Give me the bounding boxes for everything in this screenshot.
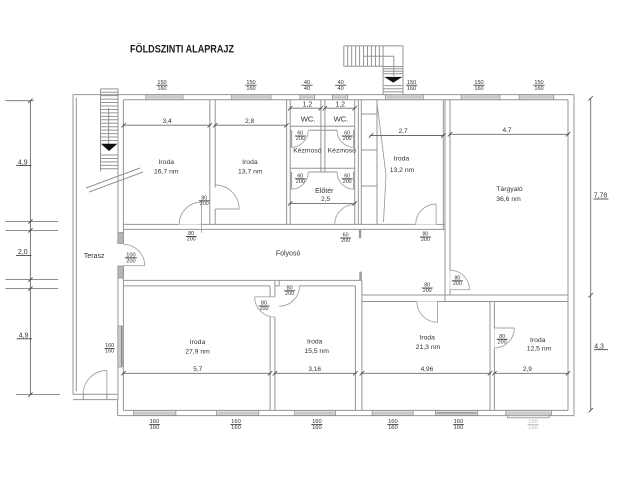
svg-text:160: 160: [528, 425, 538, 431]
svg-text:200: 200: [423, 288, 432, 294]
svg-text:200: 200: [341, 238, 350, 244]
svg-text:Terasz: Terasz: [84, 253, 105, 260]
svg-text:Kézmosó: Kézmosó: [328, 147, 357, 154]
svg-text:160: 160: [388, 425, 398, 431]
svg-text:200: 200: [343, 136, 352, 142]
svg-text:WC.: WC.: [301, 114, 316, 123]
svg-text:160: 160: [474, 86, 483, 92]
svg-text:3,16: 3,16: [308, 366, 321, 373]
svg-text:Előtér: Előtér: [315, 188, 334, 195]
svg-text:7,78: 7,78: [594, 193, 608, 200]
svg-text:2,7: 2,7: [399, 128, 408, 135]
svg-text:1,2: 1,2: [335, 102, 345, 109]
svg-text:160: 160: [105, 349, 114, 355]
svg-text:2,5: 2,5: [321, 196, 330, 203]
svg-text:Iroda: Iroda: [307, 338, 323, 345]
svg-text:FÖLDSZINTI ALAPRAJZ: FÖLDSZINTI ALAPRAJZ: [130, 42, 234, 55]
svg-text:160: 160: [150, 425, 160, 431]
svg-text:160: 160: [312, 425, 322, 431]
svg-text:Tárgyaló: Tárgyaló: [496, 186, 523, 193]
svg-text:27,9 nm: 27,9 nm: [185, 348, 210, 355]
svg-text:15,5 nm: 15,5 nm: [304, 348, 329, 355]
svg-text:13,2 nm: 13,2 nm: [390, 167, 415, 174]
svg-text:16,7 nm: 16,7 nm: [154, 169, 179, 176]
svg-text:Iroda: Iroda: [394, 156, 410, 163]
svg-text:200: 200: [285, 291, 294, 297]
svg-text:4,96: 4,96: [421, 366, 434, 373]
svg-text:36,6 nm: 36,6 nm: [496, 196, 521, 203]
svg-text:200: 200: [498, 339, 507, 345]
svg-text:200: 200: [200, 201, 209, 207]
svg-text:160: 160: [534, 86, 543, 92]
svg-text:160: 160: [231, 425, 241, 431]
svg-text:4,7: 4,7: [502, 127, 511, 134]
svg-text:Iroda: Iroda: [419, 335, 435, 342]
svg-text:200: 200: [187, 237, 196, 243]
svg-text:40: 40: [337, 86, 343, 92]
svg-text:200: 200: [296, 179, 305, 185]
svg-text:12,5 nm: 12,5 nm: [527, 346, 552, 353]
svg-text:Iroda: Iroda: [242, 159, 258, 166]
svg-text:200: 200: [296, 136, 305, 142]
svg-text:40: 40: [304, 86, 310, 92]
svg-text:200: 200: [126, 258, 135, 264]
svg-text:Kézmosó: Kézmosó: [293, 147, 322, 154]
svg-text:160: 160: [246, 86, 255, 92]
svg-text:13,7 nm: 13,7 nm: [238, 169, 263, 176]
svg-text:Iroda: Iroda: [530, 337, 546, 344]
svg-text:3,4: 3,4: [163, 118, 172, 125]
svg-text:5,7: 5,7: [193, 366, 202, 373]
svg-text:160: 160: [454, 425, 464, 431]
svg-text:4,3: 4,3: [594, 343, 604, 350]
svg-text:200: 200: [421, 237, 430, 243]
svg-text:200: 200: [343, 179, 352, 185]
svg-text:2,9: 2,9: [523, 366, 532, 373]
svg-text:WC.: WC.: [334, 114, 349, 123]
svg-text:200: 200: [260, 306, 269, 312]
svg-text:Folyosó: Folyosó: [276, 250, 301, 257]
svg-text:2,8: 2,8: [245, 118, 254, 125]
svg-text:1,2: 1,2: [303, 102, 313, 109]
svg-text:160: 160: [407, 86, 416, 92]
svg-text:Iroda: Iroda: [190, 339, 206, 346]
svg-text:160: 160: [157, 86, 166, 92]
svg-text:Iroda: Iroda: [159, 159, 175, 166]
svg-text:200: 200: [453, 281, 462, 287]
svg-text:21,3 nm: 21,3 nm: [416, 344, 441, 351]
